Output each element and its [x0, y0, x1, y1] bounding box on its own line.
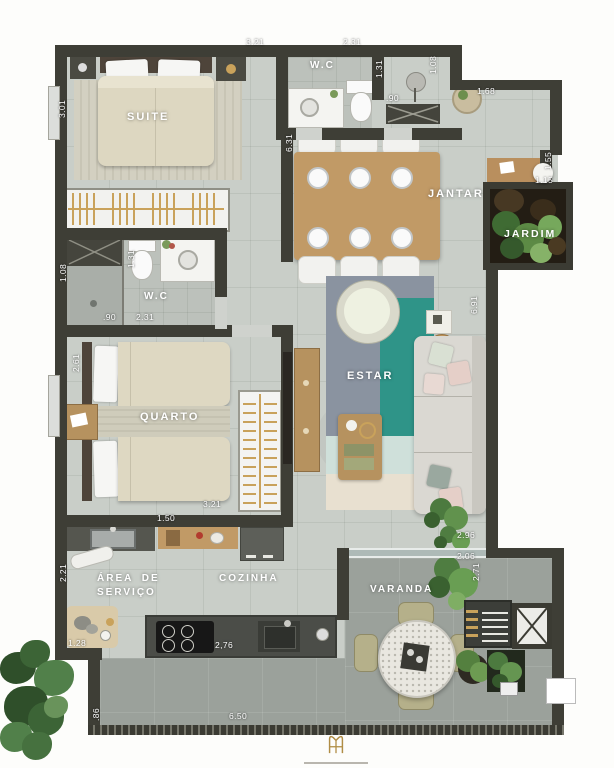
cutting-board	[166, 530, 180, 546]
closet-hangers	[152, 193, 176, 225]
side-table-decor	[433, 315, 442, 324]
closet-hangers	[112, 193, 136, 225]
lamp-decor	[226, 64, 236, 74]
sofa-pillow	[446, 360, 471, 385]
quarto-bed-seam	[130, 437, 131, 501]
outside-area	[573, 182, 614, 270]
dim-wc-social-depth: 1.08	[58, 264, 68, 282]
dim-suite-width: 3.21	[246, 37, 264, 47]
door-opening	[232, 325, 272, 337]
quarto-bed-seam	[130, 342, 131, 406]
terrace-walkway-floor	[100, 658, 345, 725]
pet-bowl	[106, 618, 114, 626]
wall	[55, 228, 227, 240]
place-setting	[391, 167, 413, 189]
skewer-handle	[466, 626, 478, 629]
grill-grate	[482, 608, 508, 642]
toilet-icon	[350, 92, 372, 122]
outdoor-basin	[500, 682, 518, 696]
window	[48, 375, 60, 437]
dim-terrace-side: .86	[91, 708, 101, 721]
dim-wc-suite-depth: 1.31	[374, 60, 384, 78]
wall	[450, 80, 562, 90]
dim-entry-width: 1.68	[477, 86, 495, 96]
gold-monogram-icon	[325, 733, 347, 755]
wall	[550, 80, 562, 155]
elevator-shaft	[512, 603, 552, 649]
room-label-area-servico-1: ÁREA DE	[97, 573, 160, 584]
skewer-handle	[466, 634, 478, 637]
dim-varanda-width-b: 2.06	[457, 551, 475, 561]
pet-bowl	[100, 630, 111, 641]
dim-cozinha-counter: 1.50	[157, 513, 175, 523]
quarto-bed-duvet	[118, 342, 230, 406]
x-strap-icon	[386, 104, 440, 124]
room-label-jantar: JANTAR	[428, 188, 484, 200]
wardrobe-hangers	[243, 398, 256, 504]
dim-desk-nook-width: 1.15	[535, 175, 553, 185]
garden-plant	[500, 237, 524, 259]
closet-hangers	[72, 193, 96, 225]
table-decor	[346, 420, 357, 431]
wardrobe-rod	[259, 394, 261, 508]
clock-decor	[78, 63, 87, 72]
door-opening	[384, 128, 412, 140]
dish-decor	[210, 532, 224, 544]
dim-suite-depth: 3.01	[57, 100, 67, 118]
fridge-handle	[246, 555, 256, 558]
quarto-bed-duvet	[118, 437, 230, 501]
quarto-bed-headboard	[82, 342, 92, 406]
sideboard-knob	[303, 428, 309, 434]
quarto-bed-headboard	[82, 437, 92, 501]
shower-frame-icon	[67, 238, 122, 266]
room-label-quarto: QUARTO	[140, 411, 199, 423]
place-setting	[349, 227, 371, 249]
wall	[276, 45, 288, 140]
dim-quarto-depth: 2.61	[71, 354, 81, 372]
dim-wc-social-inner: 1.31	[126, 250, 136, 268]
dim-varanda-width-a: 2.96	[457, 530, 475, 540]
table-tray	[344, 458, 374, 470]
wardrobe-hangers	[264, 402, 277, 504]
faucet-icon	[284, 620, 291, 627]
shaft-x-icon	[517, 608, 547, 644]
sofa-seam	[414, 396, 472, 397]
wall	[486, 262, 498, 558]
dim-wc-suite-width: 2.31	[343, 37, 361, 47]
table-tray-dark	[400, 642, 429, 671]
estar-plant	[424, 512, 440, 528]
closet-hangers	[192, 193, 216, 225]
outside-area	[0, 0, 614, 45]
skewer-handle	[466, 610, 478, 613]
entry-bench	[386, 104, 440, 124]
place-setting	[349, 167, 371, 189]
quarto-pillow	[93, 346, 119, 403]
room-label-jardim: JARDIM	[504, 228, 556, 240]
dim-desk-nook-depth: 1.55	[543, 152, 553, 170]
room-label-estar: ESTAR	[347, 370, 393, 382]
wall	[552, 548, 564, 735]
room-label-wc-suite: W.C	[310, 60, 335, 71]
dim-wc-suite-door: .90	[386, 93, 399, 103]
lamp-stem	[414, 88, 416, 102]
plate	[416, 656, 423, 663]
island-sink-basin	[264, 626, 296, 649]
burner-icon	[162, 639, 175, 652]
floor-lamp-icon	[406, 72, 426, 92]
table-tray	[344, 444, 374, 456]
jardim-planter	[483, 182, 573, 270]
burner-icon	[162, 625, 175, 638]
quarto-pillow	[93, 441, 119, 498]
suite-bed-seam	[155, 88, 156, 166]
paper-decor	[499, 161, 514, 174]
laundry-sink	[90, 529, 136, 549]
place-setting	[391, 227, 413, 249]
outside-area	[498, 270, 614, 548]
dim-terrace-width: 6.50	[229, 711, 247, 721]
sideboard-knob	[303, 380, 309, 386]
side-door	[546, 678, 576, 704]
developer-logo	[296, 733, 376, 765]
outside-area	[562, 80, 614, 182]
dish-decor	[316, 628, 329, 641]
apartment-floor-plan: SUITE W.C JANTAR JARDIM W.C QUARTO ESTAR…	[0, 0, 614, 768]
fruit-decor	[196, 532, 203, 539]
dim-servico-depth: 2.21	[58, 564, 68, 582]
table-decor	[359, 422, 376, 439]
room-label-area-servico-2: SERVIÇO	[97, 587, 156, 598]
flower-decor	[330, 90, 338, 98]
room-label-wc-social: W.C	[144, 291, 169, 302]
burner-icon	[181, 639, 194, 652]
room-label-suite: SUITE	[127, 111, 169, 123]
sofa-pillow	[426, 464, 452, 490]
sofa-pillow	[423, 373, 445, 395]
varanda-chair	[354, 634, 378, 672]
room-label-varanda: VARANDA	[370, 584, 433, 595]
decorative-plant	[0, 630, 90, 768]
dim-wc-social-door: .90	[103, 312, 116, 322]
suite-bed-fold	[98, 76, 214, 88]
door-opening	[296, 128, 322, 140]
dim-entry-depth: 1.08	[428, 56, 438, 74]
plate	[407, 649, 414, 656]
logo-tagline-microtext	[304, 762, 368, 764]
shower-box	[67, 238, 122, 266]
burner-icon	[181, 625, 194, 638]
wall	[337, 548, 349, 620]
tv-sideboard	[294, 348, 320, 472]
sink-icon	[178, 250, 198, 270]
dim-estar-length: 6.91	[469, 296, 479, 314]
dim-quarto-width: 3.21	[203, 499, 221, 509]
shower-drain	[90, 300, 97, 307]
sofa-backrest	[472, 336, 486, 514]
fridge-handle	[263, 555, 273, 558]
dim-island-width: 2,76	[215, 640, 233, 650]
garden-plant	[494, 189, 524, 213]
room-label-cozinha: COZINHA	[219, 573, 279, 584]
flower-decor	[169, 243, 175, 249]
door-opening	[215, 297, 227, 329]
armchair-cushion	[344, 288, 390, 334]
tv-panel	[283, 352, 292, 464]
place-setting	[307, 167, 329, 189]
skewer-handle	[466, 618, 478, 621]
place-setting	[307, 227, 329, 249]
dim-wc-social-width: 2.31	[136, 312, 154, 322]
sink-icon	[300, 98, 319, 117]
plant-leaf	[458, 90, 468, 100]
dim-jantar-length: 6.31	[284, 134, 294, 152]
dim-varanda-depth: 2.71	[471, 563, 481, 581]
sofa-seam	[414, 452, 472, 453]
